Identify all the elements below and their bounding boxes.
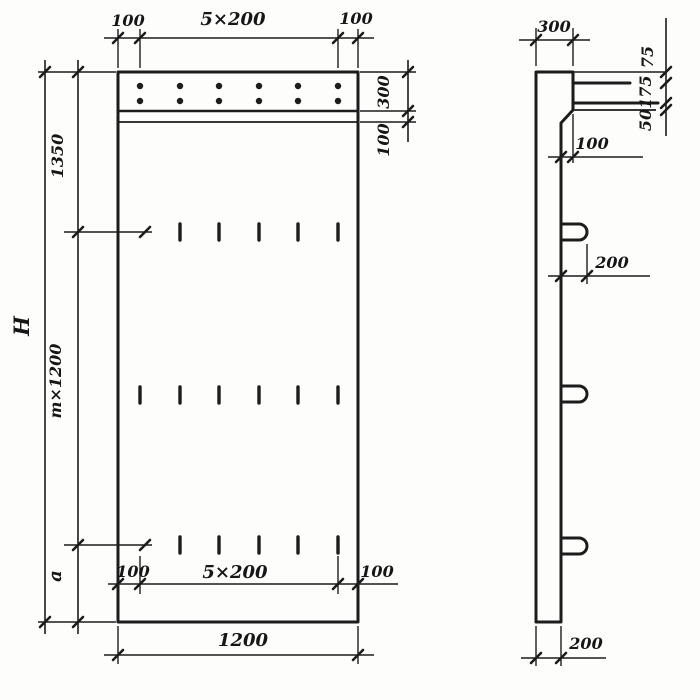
dim-label-side-cap-middle: 175 — [636, 75, 655, 108]
side-hook-dimension: 200 — [548, 244, 650, 284]
dim-label-side-cap-upper: 75 — [638, 46, 657, 68]
front-slot-row-1 — [180, 224, 338, 240]
front-panel-outline — [118, 72, 358, 622]
front-right-dimension: 300 100 — [360, 60, 416, 157]
front-slot-row-3 — [180, 537, 338, 553]
dim-label-front-inner-span: 5×200 — [202, 562, 268, 583]
panel-technical-drawing: 100 5×200 100 300 100 H 135 — [0, 0, 700, 700]
side-bottom-dimension: 200 — [521, 626, 606, 666]
front-view: 100 5×200 100 300 100 H 135 — [9, 9, 416, 664]
dim-label-front-height-top: 1350 — [48, 134, 67, 179]
dim-label-side-top-width: 300 — [537, 17, 570, 36]
front-left-dimension: H 1350 m×1200 a — [9, 60, 116, 634]
dim-label-front-top-span: 5×200 — [200, 9, 266, 30]
dim-label-front-top-right: 100 — [339, 9, 372, 28]
dim-label-front-band-height: 300 — [374, 75, 393, 108]
front-bottom-dimension: 1200 — [104, 626, 374, 664]
dim-label-front-inner-left: 100 — [116, 562, 149, 581]
front-top-dimension: 100 5×200 100 — [104, 9, 374, 68]
drawing-sheet: 100 5×200 100 300 100 H 135 — [0, 0, 700, 700]
dim-label-side-hook-length: 200 — [594, 253, 628, 272]
front-slot-row-2 — [140, 387, 338, 403]
dim-label-front-top-left: 100 — [111, 11, 144, 30]
dim-label-side-bottom-thickness: 200 — [568, 634, 602, 653]
dim-label-front-height-bottom: a — [45, 570, 66, 582]
side-view: 75 175 50 300 100 — [519, 17, 671, 666]
dim-label-front-band-gap: 100 — [374, 123, 393, 156]
front-cap-anchor-dots — [137, 83, 341, 104]
dim-label-front-height-total: H — [9, 315, 34, 337]
front-inner-bottom-dimension: 100 5×200 100 — [108, 556, 398, 594]
dim-label-front-inner-right: 100 — [360, 562, 393, 581]
dim-label-side-cap-lower: 50 — [636, 109, 655, 131]
dim-label-front-width-overall: 1200 — [218, 630, 269, 651]
dim-label-side-taper-offset: 100 — [575, 134, 608, 153]
side-cap-dimension-chain: 75 175 50 — [636, 18, 671, 136]
side-top-dimension: 300 — [519, 17, 590, 66]
dim-label-front-height-middle: m×1200 — [46, 344, 65, 419]
